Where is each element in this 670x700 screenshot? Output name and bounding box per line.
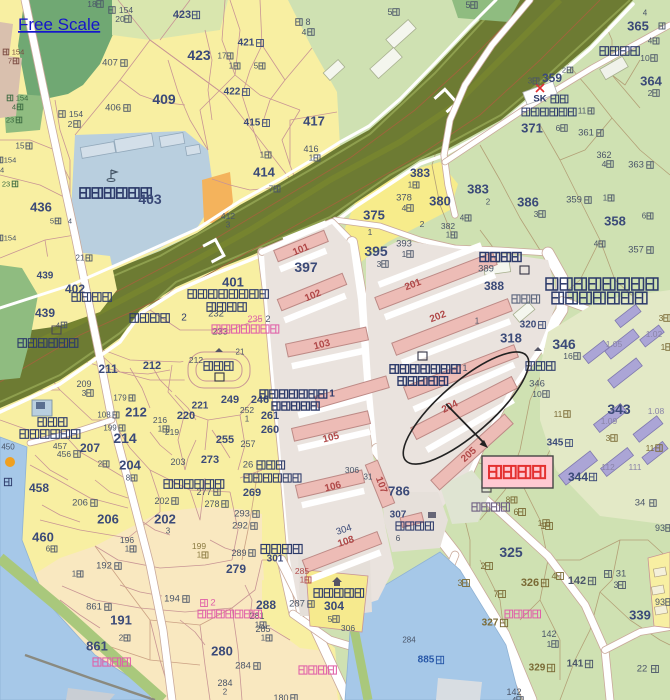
svg-text:21: 21 <box>76 254 85 263</box>
svg-text:1: 1 <box>446 231 451 240</box>
svg-text:4: 4 <box>643 9 648 18</box>
svg-text:4: 4 <box>402 203 407 213</box>
svg-text:460: 460 <box>32 530 54 545</box>
svg-text:2: 2 <box>223 688 228 697</box>
svg-text:861: 861 <box>86 639 108 654</box>
svg-text:3: 3 <box>534 209 539 219</box>
svg-text:141: 141 <box>567 659 584 670</box>
svg-text:1: 1 <box>197 551 202 560</box>
svg-text:6: 6 <box>396 533 401 543</box>
svg-text:417: 417 <box>303 114 325 129</box>
svg-text:192: 192 <box>96 561 112 572</box>
svg-text:6: 6 <box>642 212 647 221</box>
svg-text:2: 2 <box>648 88 653 98</box>
svg-text:365: 365 <box>627 19 649 34</box>
svg-text:304: 304 <box>324 599 344 613</box>
svg-text:5: 5 <box>328 614 333 624</box>
svg-text:363: 363 <box>628 160 644 171</box>
svg-text:10: 10 <box>640 53 650 63</box>
svg-text:179: 179 <box>113 394 127 403</box>
svg-text:196: 196 <box>120 535 134 545</box>
svg-text:255: 255 <box>216 434 234 446</box>
svg-text:415: 415 <box>244 118 261 129</box>
svg-text:93: 93 <box>655 523 665 533</box>
svg-text:450: 450 <box>1 443 15 452</box>
svg-text:22: 22 <box>637 664 648 675</box>
svg-text:11: 11 <box>578 107 587 116</box>
svg-text:93: 93 <box>655 597 665 607</box>
svg-text:20: 20 <box>115 14 125 24</box>
svg-text:5: 5 <box>50 217 54 226</box>
svg-text:31: 31 <box>616 569 627 580</box>
svg-text:220: 220 <box>177 410 195 422</box>
svg-text:1: 1 <box>125 545 130 554</box>
svg-text:214: 214 <box>113 430 137 446</box>
svg-text:1: 1 <box>540 521 545 531</box>
svg-text:2: 2 <box>210 598 215 609</box>
svg-text:154: 154 <box>4 156 17 165</box>
svg-text:329: 329 <box>529 663 546 674</box>
svg-text:280: 280 <box>211 644 233 659</box>
svg-text:458: 458 <box>29 481 49 495</box>
svg-text:2: 2 <box>265 314 270 324</box>
svg-text:4: 4 <box>56 321 60 330</box>
svg-text:16: 16 <box>563 351 573 361</box>
svg-text:4: 4 <box>551 571 556 581</box>
svg-text:4: 4 <box>648 37 653 46</box>
svg-text:301: 301 <box>267 554 284 565</box>
svg-text:279: 279 <box>226 562 246 576</box>
svg-text:284: 284 <box>402 636 416 645</box>
svg-text:1: 1 <box>462 363 467 373</box>
svg-text:339: 339 <box>629 608 651 623</box>
svg-text:287: 287 <box>289 599 305 610</box>
svg-text:1: 1 <box>402 249 407 259</box>
svg-text:111: 111 <box>629 462 642 472</box>
svg-text:180: 180 <box>273 693 288 700</box>
svg-text:358: 358 <box>604 214 626 229</box>
svg-text:269: 269 <box>243 487 261 499</box>
svg-text:112: 112 <box>601 462 615 472</box>
svg-text:416: 416 <box>303 144 318 154</box>
svg-text:2: 2 <box>480 561 485 571</box>
svg-text:359: 359 <box>566 195 582 206</box>
svg-text:1: 1 <box>661 342 666 352</box>
svg-text:277: 277 <box>196 487 211 497</box>
svg-text:3: 3 <box>528 77 533 86</box>
svg-text:1: 1 <box>260 151 265 160</box>
svg-text:7: 7 <box>269 185 274 194</box>
svg-text:206: 206 <box>72 498 88 509</box>
svg-text:2: 2 <box>562 66 566 75</box>
svg-text:422: 422 <box>224 87 241 98</box>
svg-text:6: 6 <box>513 507 518 517</box>
svg-text:142: 142 <box>541 629 556 639</box>
svg-text:320: 320 <box>520 320 537 331</box>
svg-text:307: 307 <box>390 510 407 521</box>
svg-text:1: 1 <box>158 425 163 434</box>
svg-text:260: 260 <box>261 424 279 436</box>
svg-text:861: 861 <box>86 602 102 613</box>
svg-text:31: 31 <box>364 473 373 482</box>
svg-text:15: 15 <box>16 142 25 151</box>
svg-text:3: 3 <box>457 578 462 588</box>
svg-text:1: 1 <box>255 621 260 630</box>
svg-text:4: 4 <box>602 159 607 169</box>
svg-text:403: 403 <box>138 191 162 207</box>
svg-text:4: 4 <box>12 103 16 112</box>
svg-text:212: 212 <box>189 355 203 365</box>
svg-text:23: 23 <box>2 180 10 189</box>
svg-text:346: 346 <box>552 336 576 352</box>
svg-text:6: 6 <box>556 123 561 133</box>
svg-text:1: 1 <box>72 570 77 579</box>
svg-text:345: 345 <box>547 438 564 449</box>
svg-text:325: 325 <box>499 544 523 560</box>
svg-text:2: 2 <box>68 119 73 129</box>
svg-text:1: 1 <box>329 389 335 400</box>
svg-text:383: 383 <box>410 166 430 180</box>
svg-text:326: 326 <box>521 577 539 589</box>
svg-text:1: 1 <box>368 227 373 237</box>
svg-text:407: 407 <box>102 58 118 69</box>
svg-text:292: 292 <box>232 521 248 532</box>
svg-text:327: 327 <box>482 618 499 629</box>
svg-text:344: 344 <box>568 470 588 484</box>
svg-text:257: 257 <box>240 439 255 449</box>
svg-text:1: 1 <box>603 194 608 203</box>
svg-text:2: 2 <box>420 219 425 229</box>
svg-text:306: 306 <box>345 465 359 475</box>
svg-text:11: 11 <box>646 443 655 453</box>
svg-text:273: 273 <box>201 454 219 466</box>
svg-text:278: 278 <box>204 499 219 509</box>
svg-text:221: 221 <box>192 401 209 412</box>
svg-text:11: 11 <box>554 409 563 419</box>
svg-text:8: 8 <box>305 17 310 27</box>
svg-text:204: 204 <box>119 458 141 473</box>
svg-text:395: 395 <box>364 243 388 259</box>
svg-text:212: 212 <box>125 405 147 420</box>
svg-text:383: 383 <box>467 182 489 197</box>
svg-text:3: 3 <box>377 259 382 269</box>
svg-text:21: 21 <box>236 348 245 357</box>
svg-text:202: 202 <box>154 496 169 506</box>
svg-text:1: 1 <box>309 154 314 163</box>
svg-text:378: 378 <box>396 193 412 204</box>
svg-text:261: 261 <box>261 410 279 422</box>
svg-text:436: 436 <box>30 200 52 215</box>
svg-text:364: 364 <box>640 74 662 89</box>
svg-text:23: 23 <box>6 116 14 125</box>
svg-text:219: 219 <box>165 427 179 437</box>
svg-text:389: 389 <box>478 264 494 275</box>
svg-text:202: 202 <box>154 512 176 527</box>
svg-text:SK: SK <box>533 94 546 105</box>
svg-text:199: 199 <box>192 541 206 551</box>
svg-text:154: 154 <box>4 234 17 243</box>
svg-text:1: 1 <box>261 634 266 643</box>
svg-text:401: 401 <box>222 275 244 290</box>
svg-text:423: 423 <box>187 47 211 63</box>
svg-text:284: 284 <box>235 661 251 672</box>
svg-text:285: 285 <box>295 566 309 576</box>
svg-text:1: 1 <box>300 576 305 585</box>
svg-text:4: 4 <box>302 27 307 37</box>
svg-text:26: 26 <box>243 460 254 471</box>
svg-text:343: 343 <box>607 401 631 417</box>
svg-text:388: 388 <box>484 279 504 293</box>
svg-text:142: 142 <box>568 575 586 587</box>
svg-text:5: 5 <box>387 7 392 17</box>
svg-text:1.08: 1.08 <box>648 406 665 416</box>
svg-text:382: 382 <box>441 221 455 231</box>
svg-text:2: 2 <box>119 634 124 643</box>
svg-text:18: 18 <box>87 0 97 9</box>
svg-text:1: 1 <box>547 639 552 649</box>
svg-text:3: 3 <box>226 221 231 230</box>
svg-text:194: 194 <box>164 594 180 605</box>
svg-text:2: 2 <box>98 460 103 469</box>
svg-text:4: 4 <box>594 240 599 249</box>
svg-text:191: 191 <box>110 613 132 628</box>
svg-text:211: 211 <box>98 362 118 376</box>
svg-text:34: 34 <box>635 498 646 509</box>
svg-text:216: 216 <box>153 415 167 425</box>
svg-text:439: 439 <box>35 306 55 320</box>
svg-text:3: 3 <box>606 433 611 443</box>
svg-text:375: 375 <box>363 208 385 223</box>
svg-text:154: 154 <box>16 94 29 103</box>
svg-text:4: 4 <box>68 217 72 226</box>
svg-text:456: 456 <box>57 449 71 459</box>
svg-text:232: 232 <box>208 309 224 320</box>
svg-text:3: 3 <box>166 527 171 536</box>
svg-text:Free Scale: Free Scale <box>18 15 100 34</box>
svg-text:439: 439 <box>37 271 54 282</box>
svg-text:3: 3 <box>659 313 664 323</box>
svg-text:8: 8 <box>506 496 511 505</box>
svg-text:3: 3 <box>613 580 618 590</box>
svg-text:4: 4 <box>512 695 517 700</box>
svg-text:212: 212 <box>143 360 161 372</box>
svg-text:1: 1 <box>408 181 413 190</box>
svg-text:1.05: 1.05 <box>606 339 623 349</box>
svg-text:406: 406 <box>105 103 121 114</box>
svg-text:1: 1 <box>245 415 250 424</box>
svg-text:885: 885 <box>418 655 435 666</box>
svg-text:4: 4 <box>460 214 465 223</box>
svg-text:306: 306 <box>341 623 355 633</box>
svg-text:284: 284 <box>217 678 232 688</box>
svg-text:414: 414 <box>253 165 275 180</box>
svg-text:5: 5 <box>465 0 470 10</box>
svg-text:154: 154 <box>69 109 83 119</box>
svg-text:207: 207 <box>80 441 100 455</box>
svg-text:108: 108 <box>97 411 111 420</box>
svg-text:1.02: 1.02 <box>646 329 663 339</box>
svg-text:1: 1 <box>475 317 480 326</box>
svg-text:203: 203 <box>170 457 185 467</box>
svg-text:5: 5 <box>254 62 259 71</box>
svg-text:371: 371 <box>521 121 543 136</box>
svg-text:6: 6 <box>46 545 51 554</box>
svg-text:14: 14 <box>0 166 4 175</box>
svg-text:359: 359 <box>542 71 562 85</box>
svg-text:380: 380 <box>429 194 451 209</box>
svg-text:2: 2 <box>181 313 187 324</box>
svg-text:10: 10 <box>532 389 542 399</box>
svg-text:421: 421 <box>238 38 255 49</box>
svg-text:386: 386 <box>517 195 539 210</box>
svg-text:235: 235 <box>247 314 262 324</box>
svg-text:1.09: 1.09 <box>601 416 618 426</box>
svg-text:412: 412 <box>221 211 235 221</box>
svg-text:154: 154 <box>12 48 25 57</box>
svg-text:346: 346 <box>529 379 545 390</box>
svg-text:7: 7 <box>493 589 498 599</box>
svg-text:397: 397 <box>294 259 318 275</box>
svg-text:249: 249 <box>221 394 239 406</box>
svg-text:409: 409 <box>152 91 176 107</box>
svg-text:293: 293 <box>234 509 250 520</box>
svg-text:17: 17 <box>218 52 227 61</box>
svg-text:423: 423 <box>173 9 191 21</box>
svg-text:7: 7 <box>8 57 12 66</box>
svg-text:252: 252 <box>240 405 254 415</box>
svg-text:357: 357 <box>628 245 644 256</box>
svg-text:206: 206 <box>97 512 119 527</box>
svg-text:393: 393 <box>396 239 412 250</box>
svg-text:289: 289 <box>231 548 246 558</box>
svg-text:318: 318 <box>500 331 522 346</box>
svg-text:786: 786 <box>388 484 410 499</box>
svg-text:361: 361 <box>578 128 594 139</box>
svg-text:8: 8 <box>126 474 131 483</box>
svg-text:3: 3 <box>82 388 87 398</box>
svg-text:2: 2 <box>486 198 491 207</box>
svg-text:1: 1 <box>229 62 234 71</box>
